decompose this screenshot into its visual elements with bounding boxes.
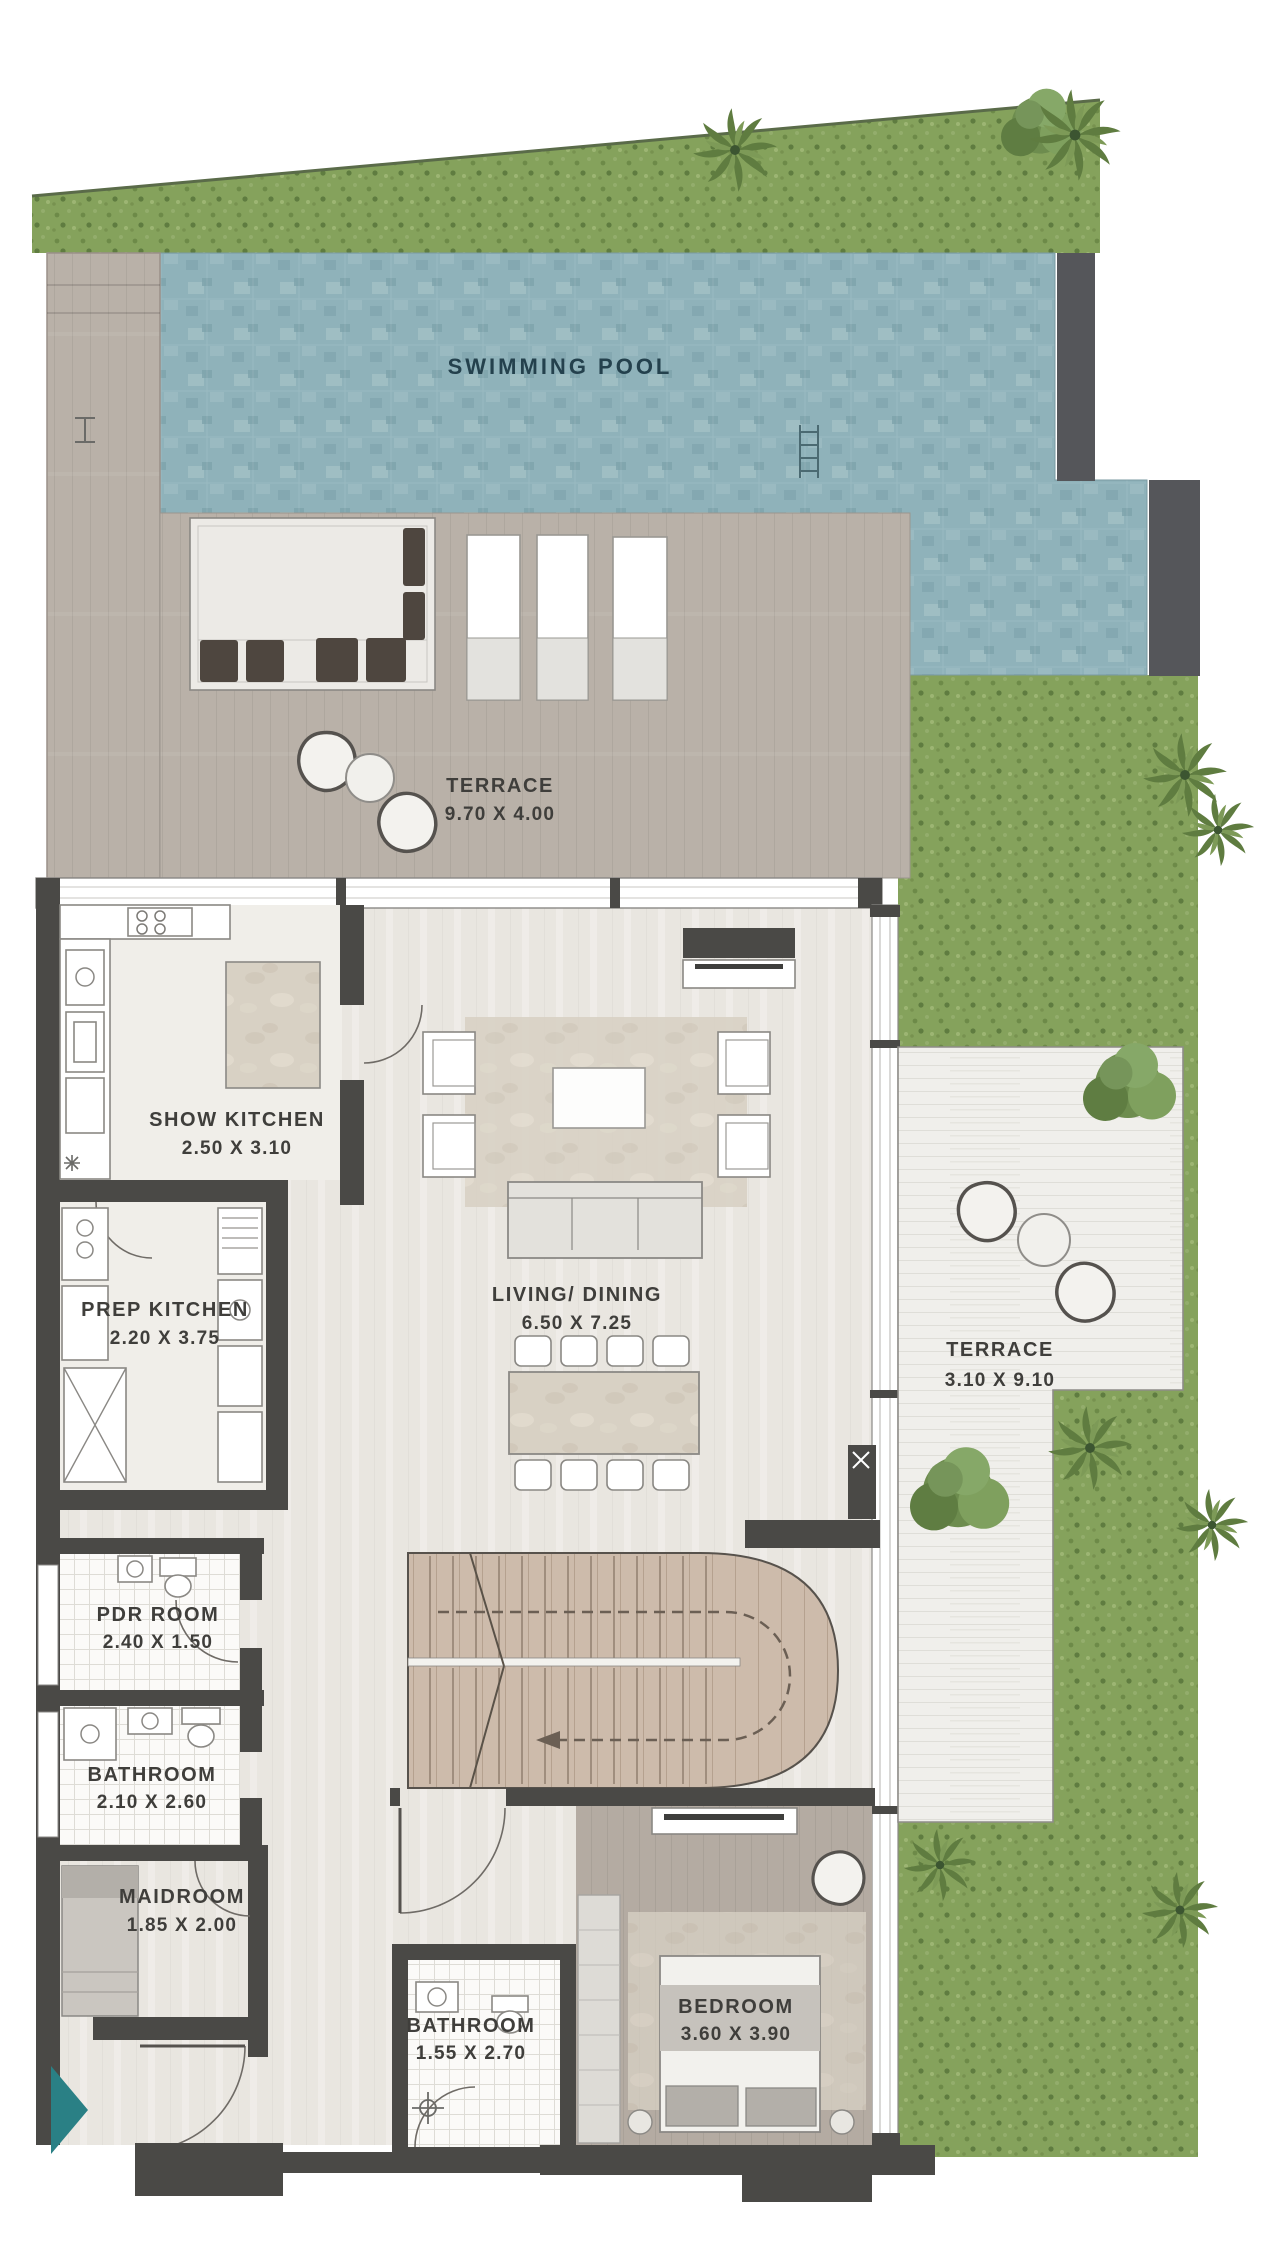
bed — [628, 1956, 854, 2134]
bedroom-tv-console — [652, 1808, 797, 1834]
hall-wall — [36, 1490, 288, 1510]
floor-plan-page: SWIMMING POOL — [0, 0, 1280, 2247]
sofa — [508, 1182, 702, 1258]
wall-segment — [390, 1788, 400, 1806]
structural-column — [848, 1445, 876, 1519]
bedroom-dims: 3.60 X 3.90 — [681, 2024, 791, 2045]
nightstand — [830, 2110, 854, 2134]
left-exterior-wall — [36, 905, 60, 2145]
bedroom-label: BEDROOM — [678, 1996, 794, 2018]
living-dining-label: LIVING/ DINING — [492, 1284, 662, 1306]
swimming-pool-label: SWIMMING POOL — [448, 354, 673, 379]
floor-plan-drawing: SWIMMING POOL — [0, 0, 1280, 2247]
garden-grass-top — [32, 100, 1100, 253]
washbasin-icon — [416, 1982, 458, 2012]
maidroom-label: MAIDROOM — [119, 1886, 245, 1908]
prep-kitchen-dims: 2.20 X 3.75 — [110, 1328, 220, 1349]
bottom-boundary-wall — [135, 2143, 935, 2202]
tv-wall-unit — [683, 928, 795, 988]
show-kitchen-dims: 2.50 X 3.10 — [182, 1138, 292, 1159]
bedroom-room: BEDROOM 3.60 X 3.90 — [576, 1806, 872, 2145]
show-kitchen-room: SHOW KITCHEN 2.50 X 3.10 — [60, 905, 342, 1180]
pool-terrace-area: TERRACE 9.70 X 4.00 — [160, 513, 910, 878]
maidroom-dims: 1.85 X 2.00 — [127, 1915, 237, 1936]
show-kitchen-label: SHOW KITCHEN — [149, 1109, 325, 1131]
pool-terrace-label: TERRACE — [446, 775, 554, 797]
nightstand — [628, 2110, 652, 2134]
stove-icon — [128, 908, 192, 936]
sun-lounger — [613, 537, 667, 700]
terrace-window-wall — [36, 878, 882, 908]
shower-icon — [64, 1708, 116, 1760]
pool-retaining-wall-upper — [1057, 253, 1095, 481]
side-terrace-dims: 3.10 X 9.10 — [945, 1370, 1055, 1391]
wardrobe — [578, 1895, 620, 2143]
sun-lounger — [467, 535, 520, 700]
outdoor-lounge-set — [190, 518, 435, 690]
living-dining-dims: 6.50 X 7.25 — [522, 1313, 632, 1334]
pdr-room-label: PDR ROOM — [97, 1604, 220, 1626]
service-shaft — [64, 1368, 126, 1482]
bathroom-lower-label: BATHROOM — [406, 2015, 535, 2037]
kitchen-island — [226, 962, 320, 1088]
sun-loungers — [467, 535, 667, 700]
bathroom-lower-dims: 1.55 X 2.70 — [416, 2043, 526, 2064]
wall-segment — [506, 1788, 875, 1806]
sun-lounger — [537, 535, 588, 700]
bathroom-left-label: BATHROOM — [87, 1764, 216, 1786]
pool-terrace-dims: 9.70 X 4.00 — [445, 804, 555, 825]
pdr-room: PDR ROOM 2.40 X 1.50 — [36, 1538, 264, 1706]
pool-deck-left-strip — [47, 253, 160, 878]
pool-retaining-wall-lower — [1149, 480, 1200, 676]
prep-kitchen-label: PREP KITCHEN — [81, 1299, 249, 1321]
prep-kitchen-room: PREP KITCHEN 2.20 X 3.75 — [60, 1180, 288, 1490]
snowflake-icon — [64, 1155, 80, 1171]
coffee-table — [553, 1068, 645, 1128]
bathroom-left-dims: 2.10 X 2.60 — [97, 1792, 207, 1813]
washbasin-icon — [128, 1708, 172, 1734]
pdr-room-dims: 2.40 X 1.50 — [103, 1632, 213, 1653]
washbasin-icon — [118, 1556, 152, 1582]
bathroom-lower-room: BATHROOM 1.55 X 2.70 — [392, 1944, 576, 2147]
side-terrace-label: TERRACE — [946, 1339, 1054, 1361]
bathroom-left-room: BATHROOM 2.10 X 2.60 — [36, 1690, 264, 1845]
